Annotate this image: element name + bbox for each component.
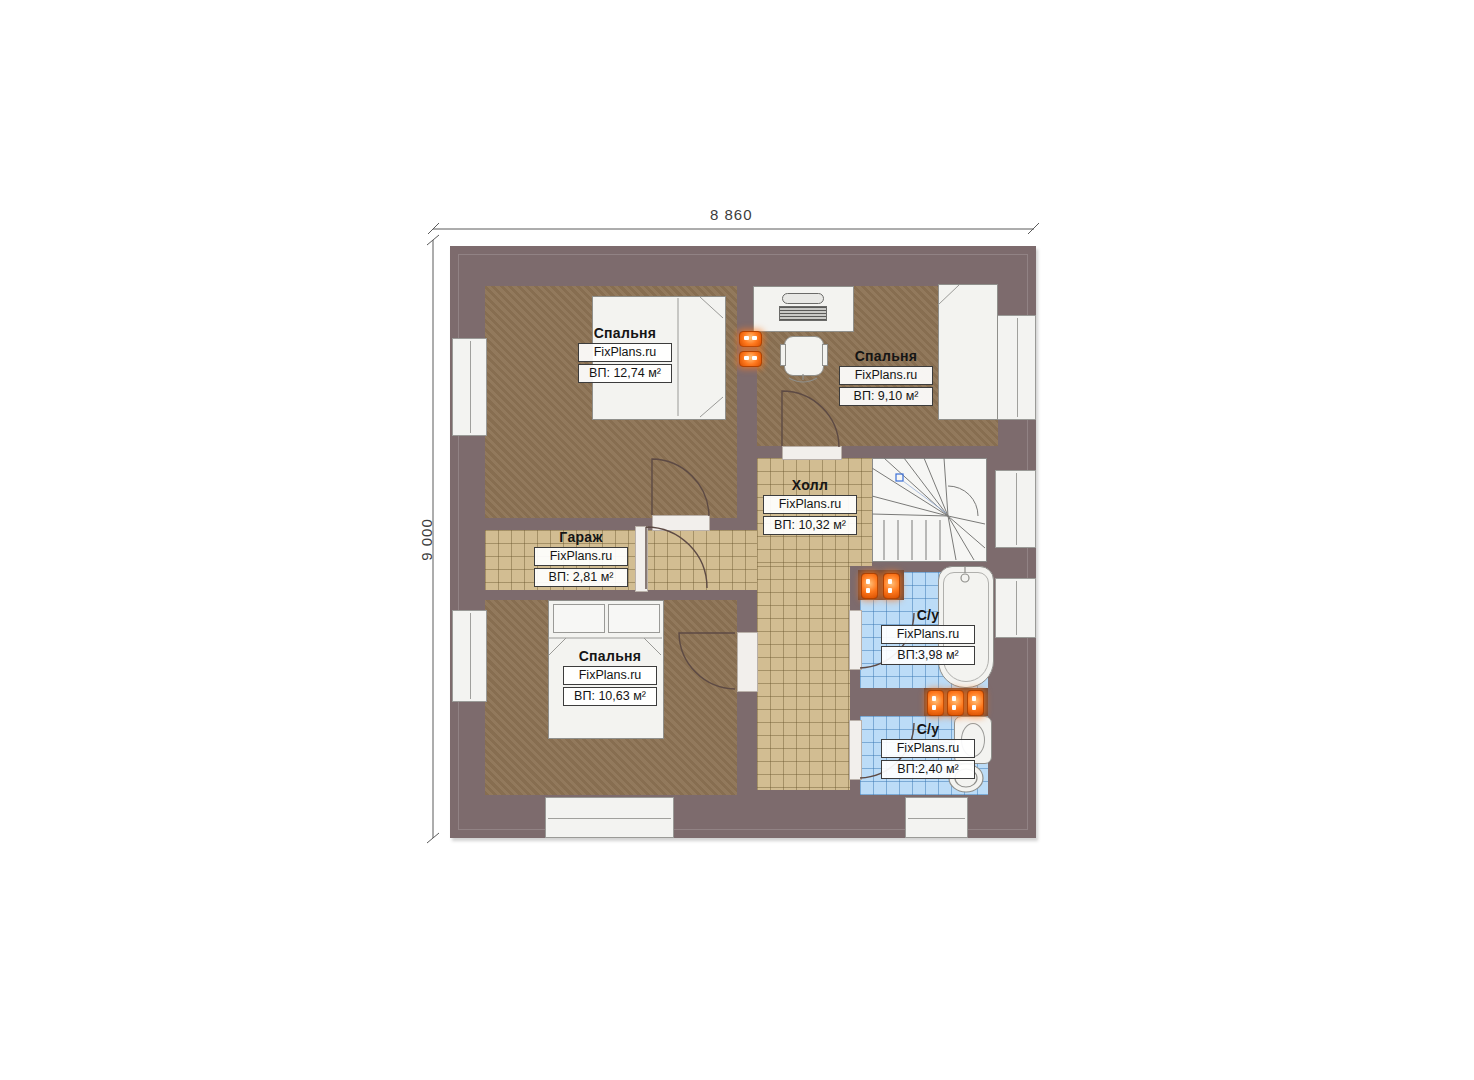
room-title: Спальня: [855, 348, 918, 364]
room-label-bath2: С/у FixPlans.ru ВП:2,40 м²: [881, 721, 975, 779]
door-opening-bedroom1: [652, 515, 710, 531]
door-opening-bedroom3: [737, 632, 758, 692]
switch-icon: [739, 331, 762, 347]
window-right-bedroom2: [997, 315, 1036, 420]
corridor-floor: [757, 566, 850, 790]
brand-label: FixPlans.ru: [563, 666, 657, 685]
room-title: С/у: [917, 721, 940, 737]
area-label: ВП:2,40 м²: [881, 760, 975, 779]
room-title: С/у: [917, 607, 940, 623]
pillow-right: [608, 604, 660, 633]
area-label: ВП: 10,63 м²: [563, 687, 657, 706]
brand-label: FixPlans.ru: [763, 495, 857, 514]
office-chair: [784, 336, 824, 376]
window-left-bedroom1: [452, 338, 487, 436]
chair-arm-right: [822, 344, 828, 366]
floor-plan-canvas: 8 860 9 000: [0, 0, 1474, 1080]
radiator-icon: [967, 690, 984, 716]
room-label-bedroom1: Спальня FixPlans.ru ВП: 12,74 м²: [578, 325, 672, 383]
room-label-garage: Гараж FixPlans.ru ВП: 2,81 м²: [534, 529, 628, 587]
pillow-left: [553, 604, 605, 633]
bed-single-bedroom2: [938, 284, 998, 420]
radiator-icon: [883, 573, 900, 599]
room-label-bedroom3: Спальня FixPlans.ru ВП: 10,63 м²: [563, 648, 657, 706]
dimension-width-label: 8 860: [710, 206, 753, 223]
window-bottom-bath2: [905, 797, 968, 838]
radiator-icon: [927, 690, 944, 716]
staircase-area: [872, 458, 987, 562]
brand-label: FixPlans.ru: [578, 343, 672, 362]
window-bottom-bedroom3: [545, 797, 674, 838]
room-label-bedroom2: Спальня FixPlans.ru ВП: 9,10 м²: [839, 348, 933, 406]
door-opening-bedroom2: [782, 446, 842, 460]
radiator-icon: [947, 690, 964, 716]
brand-label: FixPlans.ru: [534, 547, 628, 566]
area-label: ВП: 2,81 м²: [534, 568, 628, 587]
chair-arm-left: [780, 344, 786, 366]
door-opening-bath1: [849, 610, 862, 670]
dimension-height-label: 9 000: [418, 518, 435, 561]
window-left-bedroom3: [452, 610, 487, 702]
desk-laptop-icon: [782, 293, 824, 304]
room-title: Спальня: [579, 648, 642, 664]
room-label-bath1: С/у FixPlans.ru ВП:3,98 м²: [881, 607, 975, 665]
window-right-bath1: [995, 578, 1036, 638]
door-opening-bath2: [849, 720, 862, 780]
door-leaf-garage: [635, 526, 648, 592]
window-right-stairs: [995, 470, 1036, 548]
area-label: ВП: 12,74 м²: [578, 364, 672, 383]
room-label-hall: Холл FixPlans.ru ВП: 10,32 м²: [763, 477, 857, 535]
room-title: Гараж: [559, 529, 602, 545]
room-title: Спальня: [594, 325, 657, 341]
brand-label: FixPlans.ru: [839, 366, 933, 385]
area-label: ВП: 9,10 м²: [839, 387, 933, 406]
area-label: ВП: 10,32 м²: [763, 516, 857, 535]
area-label: ВП:3,98 м²: [881, 646, 975, 665]
brand-label: FixPlans.ru: [881, 739, 975, 758]
switch-icon: [739, 351, 762, 367]
desk-keyboard-icon: [779, 306, 827, 321]
brand-label: FixPlans.ru: [881, 625, 975, 644]
radiator-icon: [861, 573, 878, 599]
room-title: Холл: [792, 477, 828, 493]
